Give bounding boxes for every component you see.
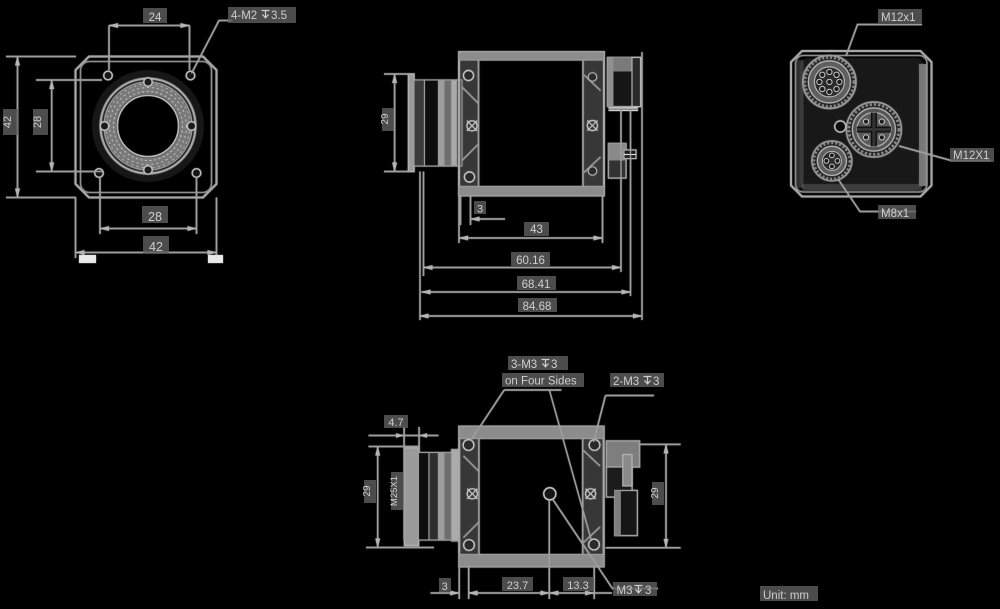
svg-text:29: 29 [362, 485, 373, 497]
svg-text:23.7: 23.7 [507, 580, 528, 592]
svg-text:4.7: 4.7 [388, 417, 403, 429]
svg-text:M8x1: M8x1 [881, 208, 909, 220]
svg-text:42: 42 [149, 240, 163, 254]
svg-text:3-M3: 3-M3 [511, 359, 537, 371]
svg-text:M3: M3 [617, 585, 633, 597]
svg-text:Unit: mm: Unit: mm [763, 590, 809, 602]
svg-text:42: 42 [2, 116, 14, 128]
svg-text:M12x1: M12x1 [881, 12, 916, 24]
svg-text:3: 3 [551, 359, 557, 371]
svg-text:28: 28 [148, 210, 162, 224]
svg-text:29: 29 [380, 113, 391, 125]
svg-text:3: 3 [477, 204, 483, 216]
svg-text:28: 28 [32, 116, 44, 128]
svg-text:3: 3 [653, 376, 659, 388]
svg-text:on Four Sides: on Four Sides [505, 376, 577, 388]
svg-text:M12X1: M12X1 [953, 150, 989, 162]
svg-text:13.3: 13.3 [567, 580, 588, 592]
svg-text:3: 3 [442, 581, 448, 593]
svg-text:29: 29 [650, 487, 661, 499]
svg-text:3: 3 [645, 585, 651, 597]
svg-text:43: 43 [530, 224, 543, 236]
svg-text:68.41: 68.41 [522, 279, 551, 291]
svg-text:84.68: 84.68 [523, 301, 552, 313]
svg-text:M25X1: M25X1 [389, 476, 400, 506]
svg-text:60.16: 60.16 [516, 255, 545, 267]
svg-text:24: 24 [149, 12, 162, 24]
svg-text:3.5: 3.5 [271, 10, 287, 22]
svg-text:2-M3: 2-M3 [613, 376, 639, 388]
svg-text:4-M2: 4-M2 [231, 10, 257, 22]
